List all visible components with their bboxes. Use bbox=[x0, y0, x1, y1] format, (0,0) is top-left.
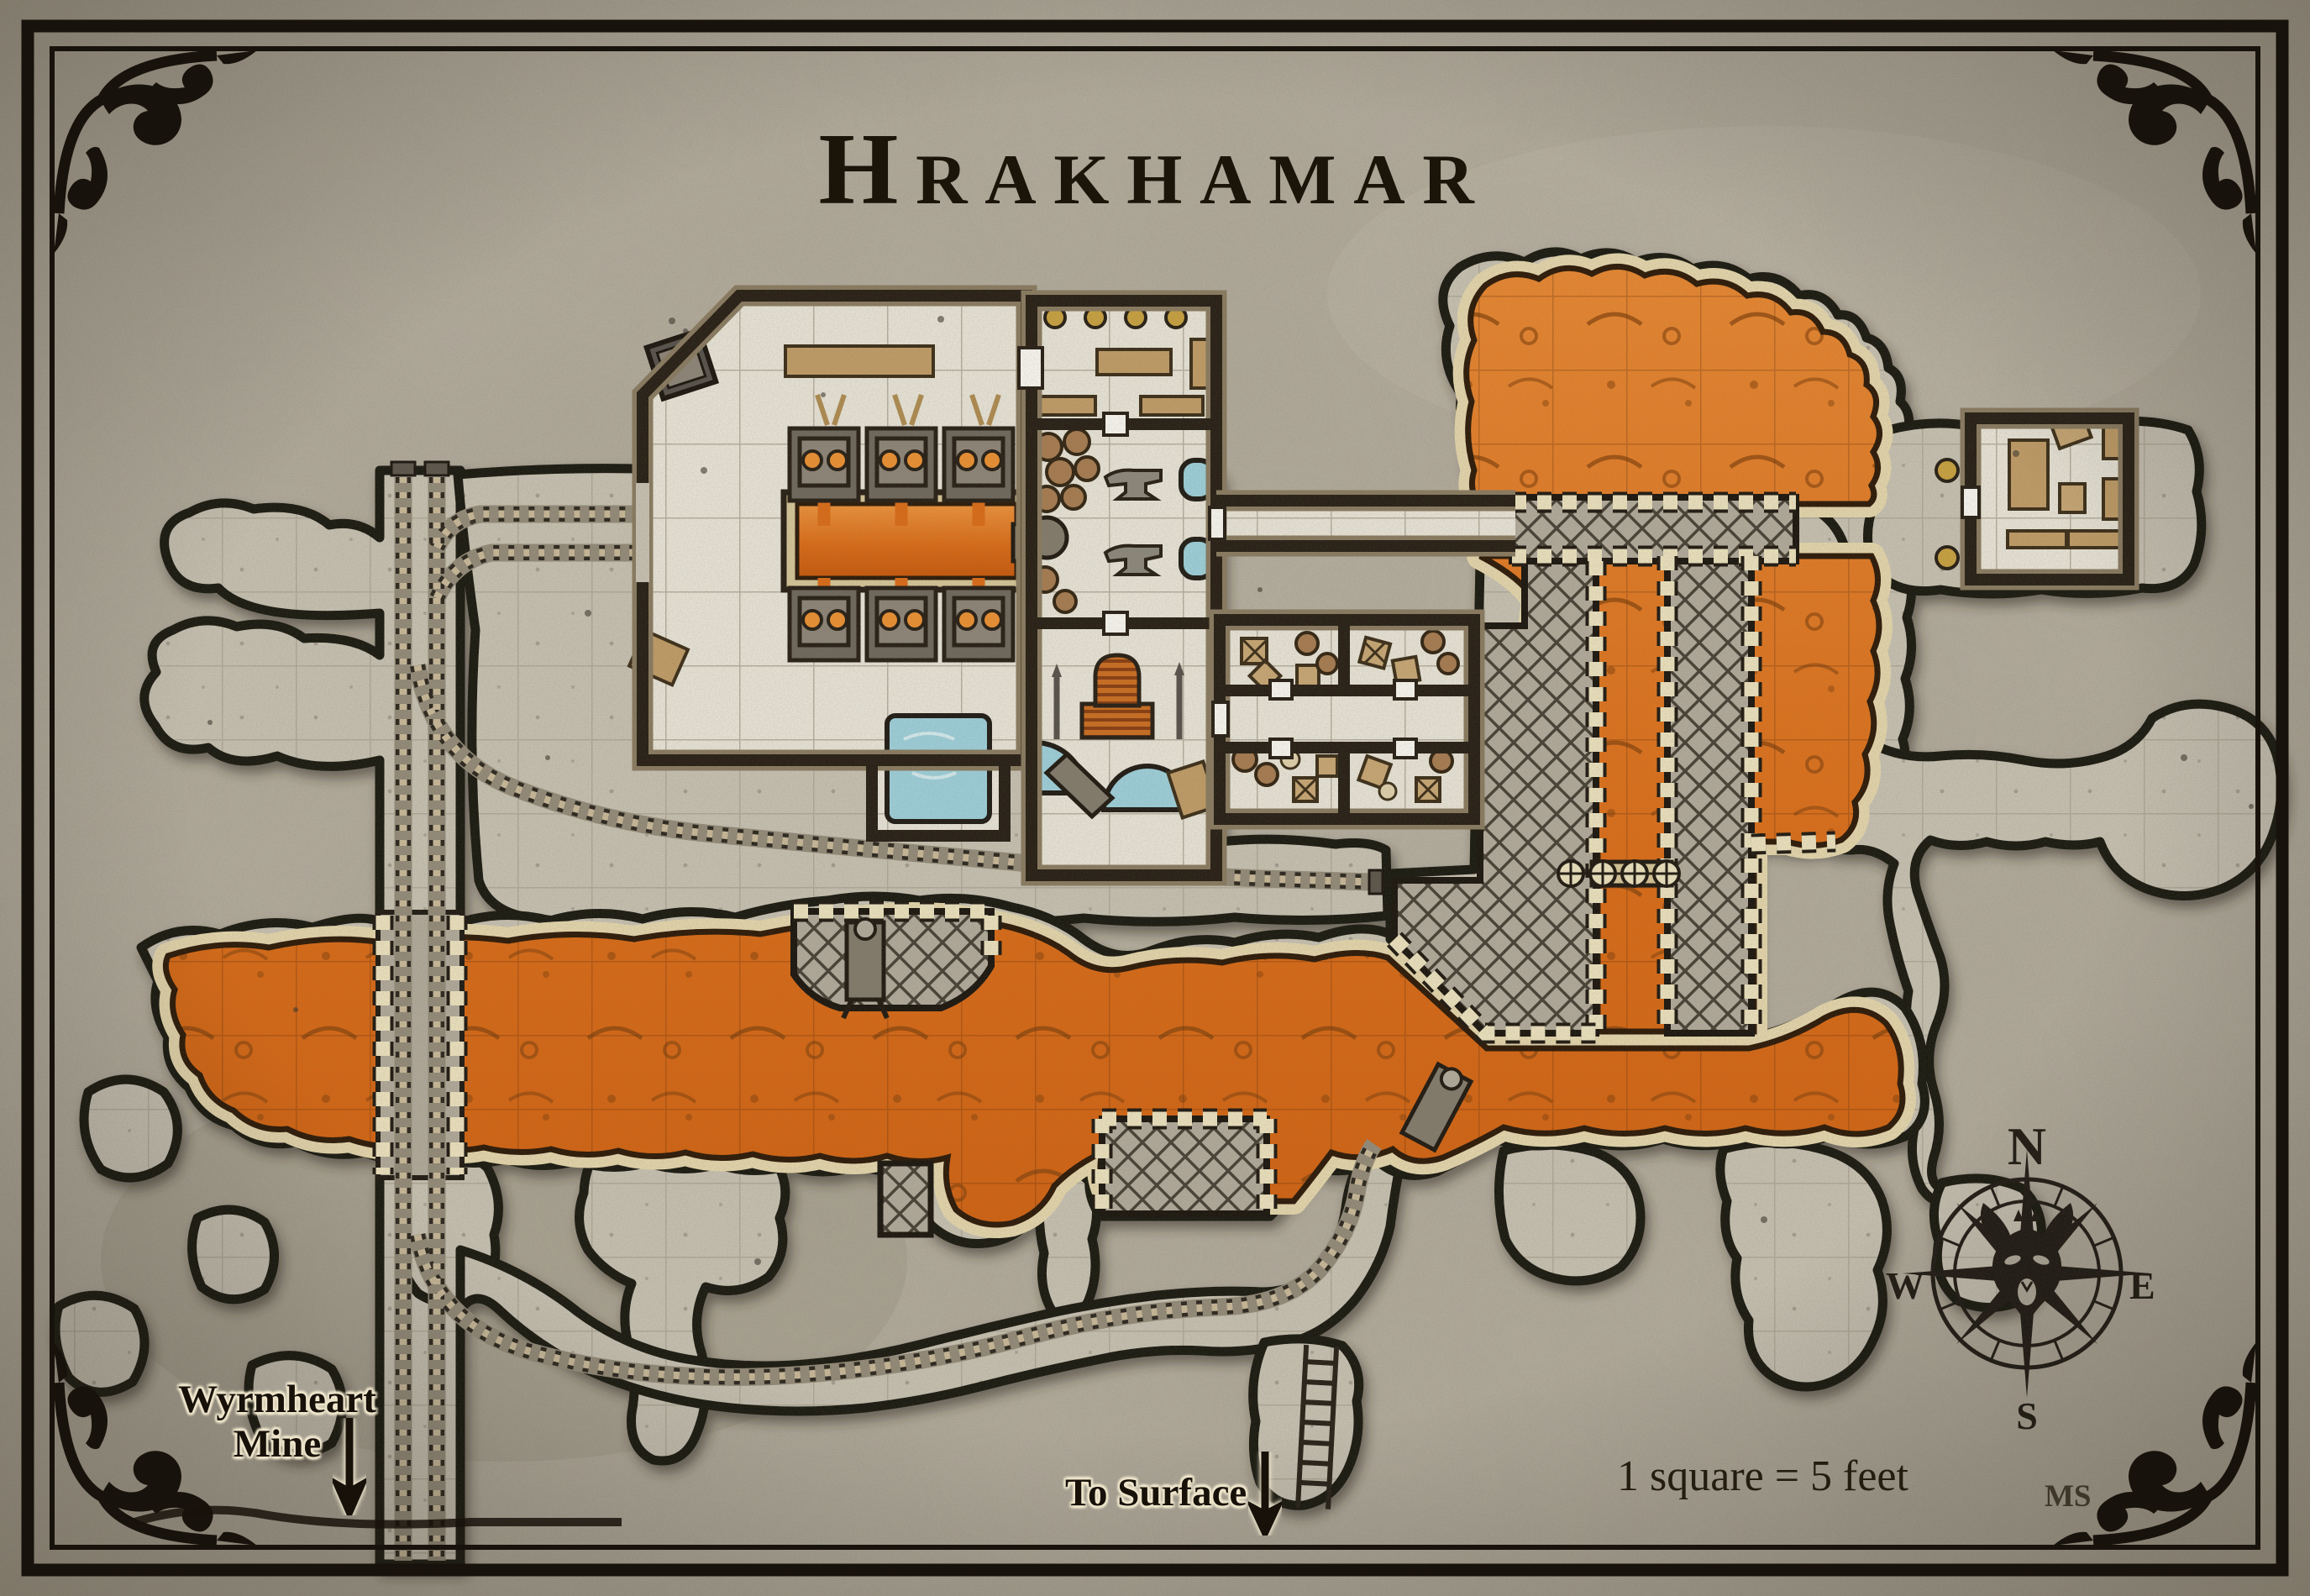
map-title: Hrakhamar bbox=[819, 111, 1492, 228]
map-sheet: N E S W Hrakhamar Wyrmheart Mine To Surf… bbox=[0, 0, 2310, 1596]
wyrmheart-mine-label: Wyrmheart Mine bbox=[133, 1378, 422, 1466]
wyrmheart-line1: Wyrmheart bbox=[133, 1378, 422, 1422]
scale-note: 1 square = 5 feet bbox=[1617, 1452, 1908, 1501]
wyrmheart-down-arrow-icon bbox=[333, 1418, 366, 1515]
vignette bbox=[0, 0, 2310, 1596]
to-surface-label: To Surface bbox=[1065, 1470, 1247, 1515]
to-surface-down-arrow-icon bbox=[1248, 1452, 1282, 1536]
wyrmheart-line2: Mine bbox=[133, 1422, 422, 1467]
dungeon-map-canvas: N E S W bbox=[0, 0, 2310, 1596]
artist-initials: MS bbox=[2045, 1478, 2092, 1515]
